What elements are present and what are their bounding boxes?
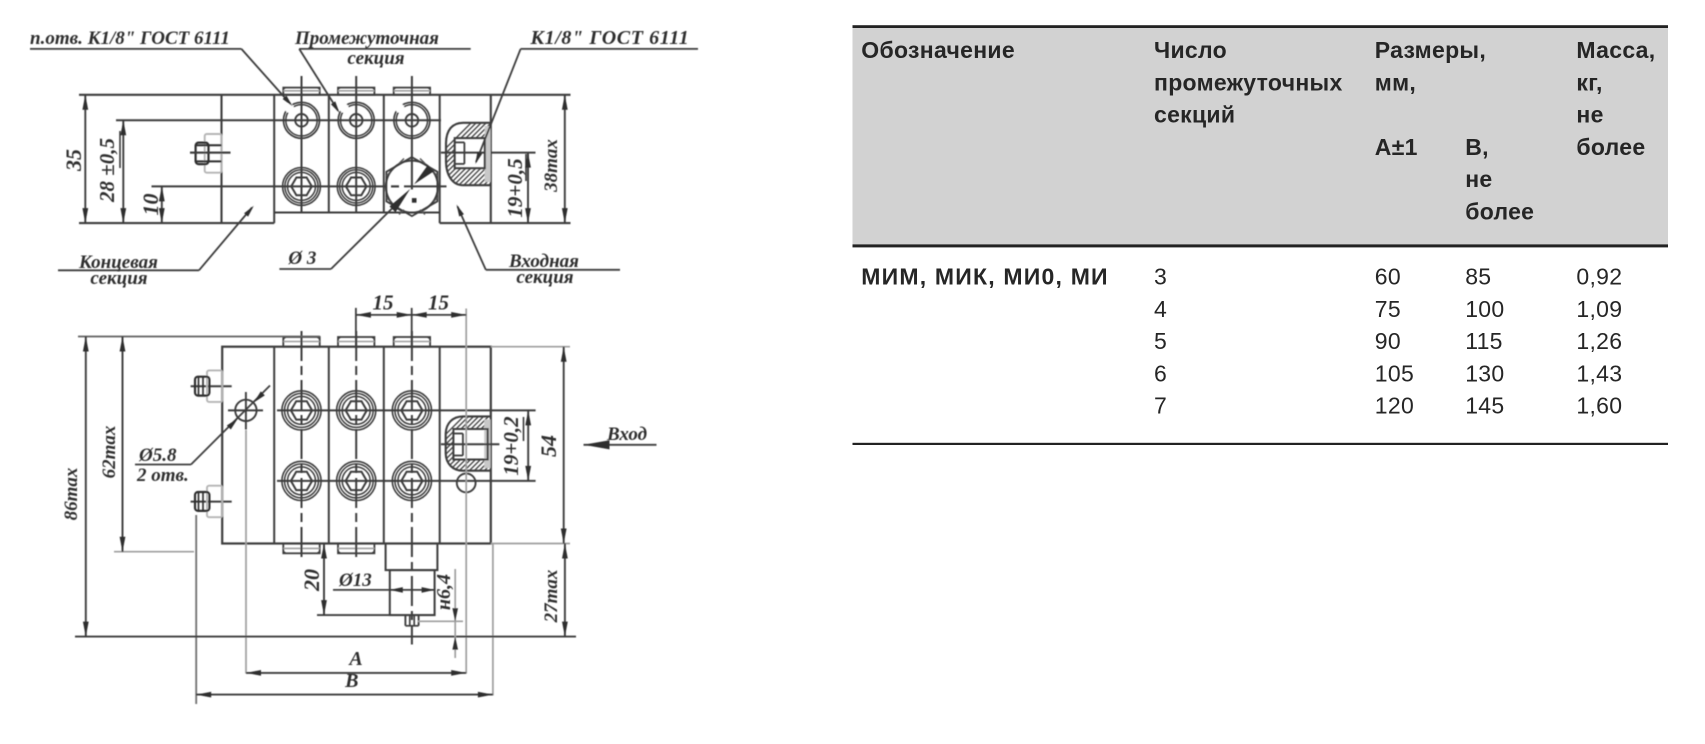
svg-text:130: 130 — [1465, 360, 1504, 386]
svg-text:75: 75 — [1375, 296, 1401, 322]
svg-text:Ø5.8: Ø5.8 — [138, 445, 177, 466]
svg-text:105: 105 — [1375, 360, 1414, 386]
svg-text:15: 15 — [373, 291, 394, 315]
svg-text:54: 54 — [536, 435, 561, 457]
svg-text:120: 120 — [1375, 393, 1414, 419]
svg-text:Обозначение: Обозначение — [861, 37, 1015, 63]
svg-text:115: 115 — [1465, 328, 1503, 354]
svg-text:Ø 3: Ø 3 — [287, 248, 316, 269]
svg-text:Вход: Вход — [606, 424, 647, 445]
svg-text:15: 15 — [428, 291, 449, 315]
svg-text:кг,: кг, — [1576, 69, 1602, 95]
svg-text:27max: 27max — [541, 569, 562, 623]
svg-text:145: 145 — [1465, 393, 1504, 419]
svg-text:Число: Число — [1154, 37, 1227, 63]
svg-text:более: более — [1465, 199, 1534, 225]
svg-text:60: 60 — [1375, 264, 1401, 290]
svg-text:1,60: 1,60 — [1576, 393, 1622, 419]
svg-text:А: А — [347, 648, 362, 670]
svg-text:А±1: А±1 — [1375, 134, 1418, 160]
svg-text:В,: В, — [1465, 134, 1489, 160]
svg-text:н6,4: н6,4 — [433, 574, 455, 610]
svg-text:не: не — [1576, 102, 1603, 128]
svg-text:МИМ, МИК, МИ0, МИ: МИМ, МИК, МИ0, МИ — [861, 264, 1109, 290]
svg-text:секция: секция — [347, 48, 404, 69]
svg-text:38max: 38max — [541, 139, 562, 193]
svg-text:19+0,5: 19+0,5 — [503, 158, 527, 217]
svg-text:62max: 62max — [99, 425, 120, 478]
svg-text:1,09: 1,09 — [1576, 296, 1622, 322]
svg-text:3: 3 — [1154, 264, 1167, 290]
svg-text:20: 20 — [299, 569, 324, 592]
svg-text:100: 100 — [1465, 296, 1504, 322]
svg-text:0,92: 0,92 — [1576, 264, 1622, 290]
svg-text:Размеры,: Размеры, — [1375, 37, 1486, 63]
svg-text:Масса,: Масса, — [1576, 37, 1655, 63]
svg-text:1,26: 1,26 — [1576, 328, 1622, 354]
svg-text:28 ±0,5: 28 ±0,5 — [95, 138, 119, 203]
svg-text:10: 10 — [138, 194, 163, 216]
svg-text:Ø13: Ø13 — [338, 570, 372, 591]
svg-text:не: не — [1465, 166, 1492, 192]
svg-text:К1/8" ГОСТ 6111: К1/8" ГОСТ 6111 — [530, 27, 690, 49]
svg-text:промежуточных: промежуточных — [1154, 69, 1343, 95]
svg-text:мм,: мм, — [1375, 69, 1416, 95]
svg-text:90: 90 — [1375, 328, 1401, 354]
svg-text:35: 35 — [61, 149, 86, 172]
svg-text:Промежуточная: Промежуточная — [294, 28, 439, 49]
svg-text:более: более — [1576, 134, 1645, 160]
svg-text:п.отв. К1/8" ГОСТ 6111: п.отв. К1/8" ГОСТ 6111 — [30, 28, 230, 49]
svg-text:85: 85 — [1465, 264, 1491, 290]
svg-text:6: 6 — [1154, 360, 1167, 386]
svg-text:5: 5 — [1154, 328, 1167, 354]
svg-text:В: В — [344, 670, 358, 692]
svg-text:2 отв.: 2 отв. — [136, 465, 189, 486]
svg-text:7: 7 — [1154, 393, 1167, 419]
svg-text:19+0,2: 19+0,2 — [499, 416, 523, 476]
svg-text:4: 4 — [1154, 296, 1167, 322]
svg-text:секций: секций — [1154, 102, 1235, 128]
svg-text:86max: 86max — [61, 467, 82, 520]
svg-text:1,43: 1,43 — [1576, 360, 1622, 386]
